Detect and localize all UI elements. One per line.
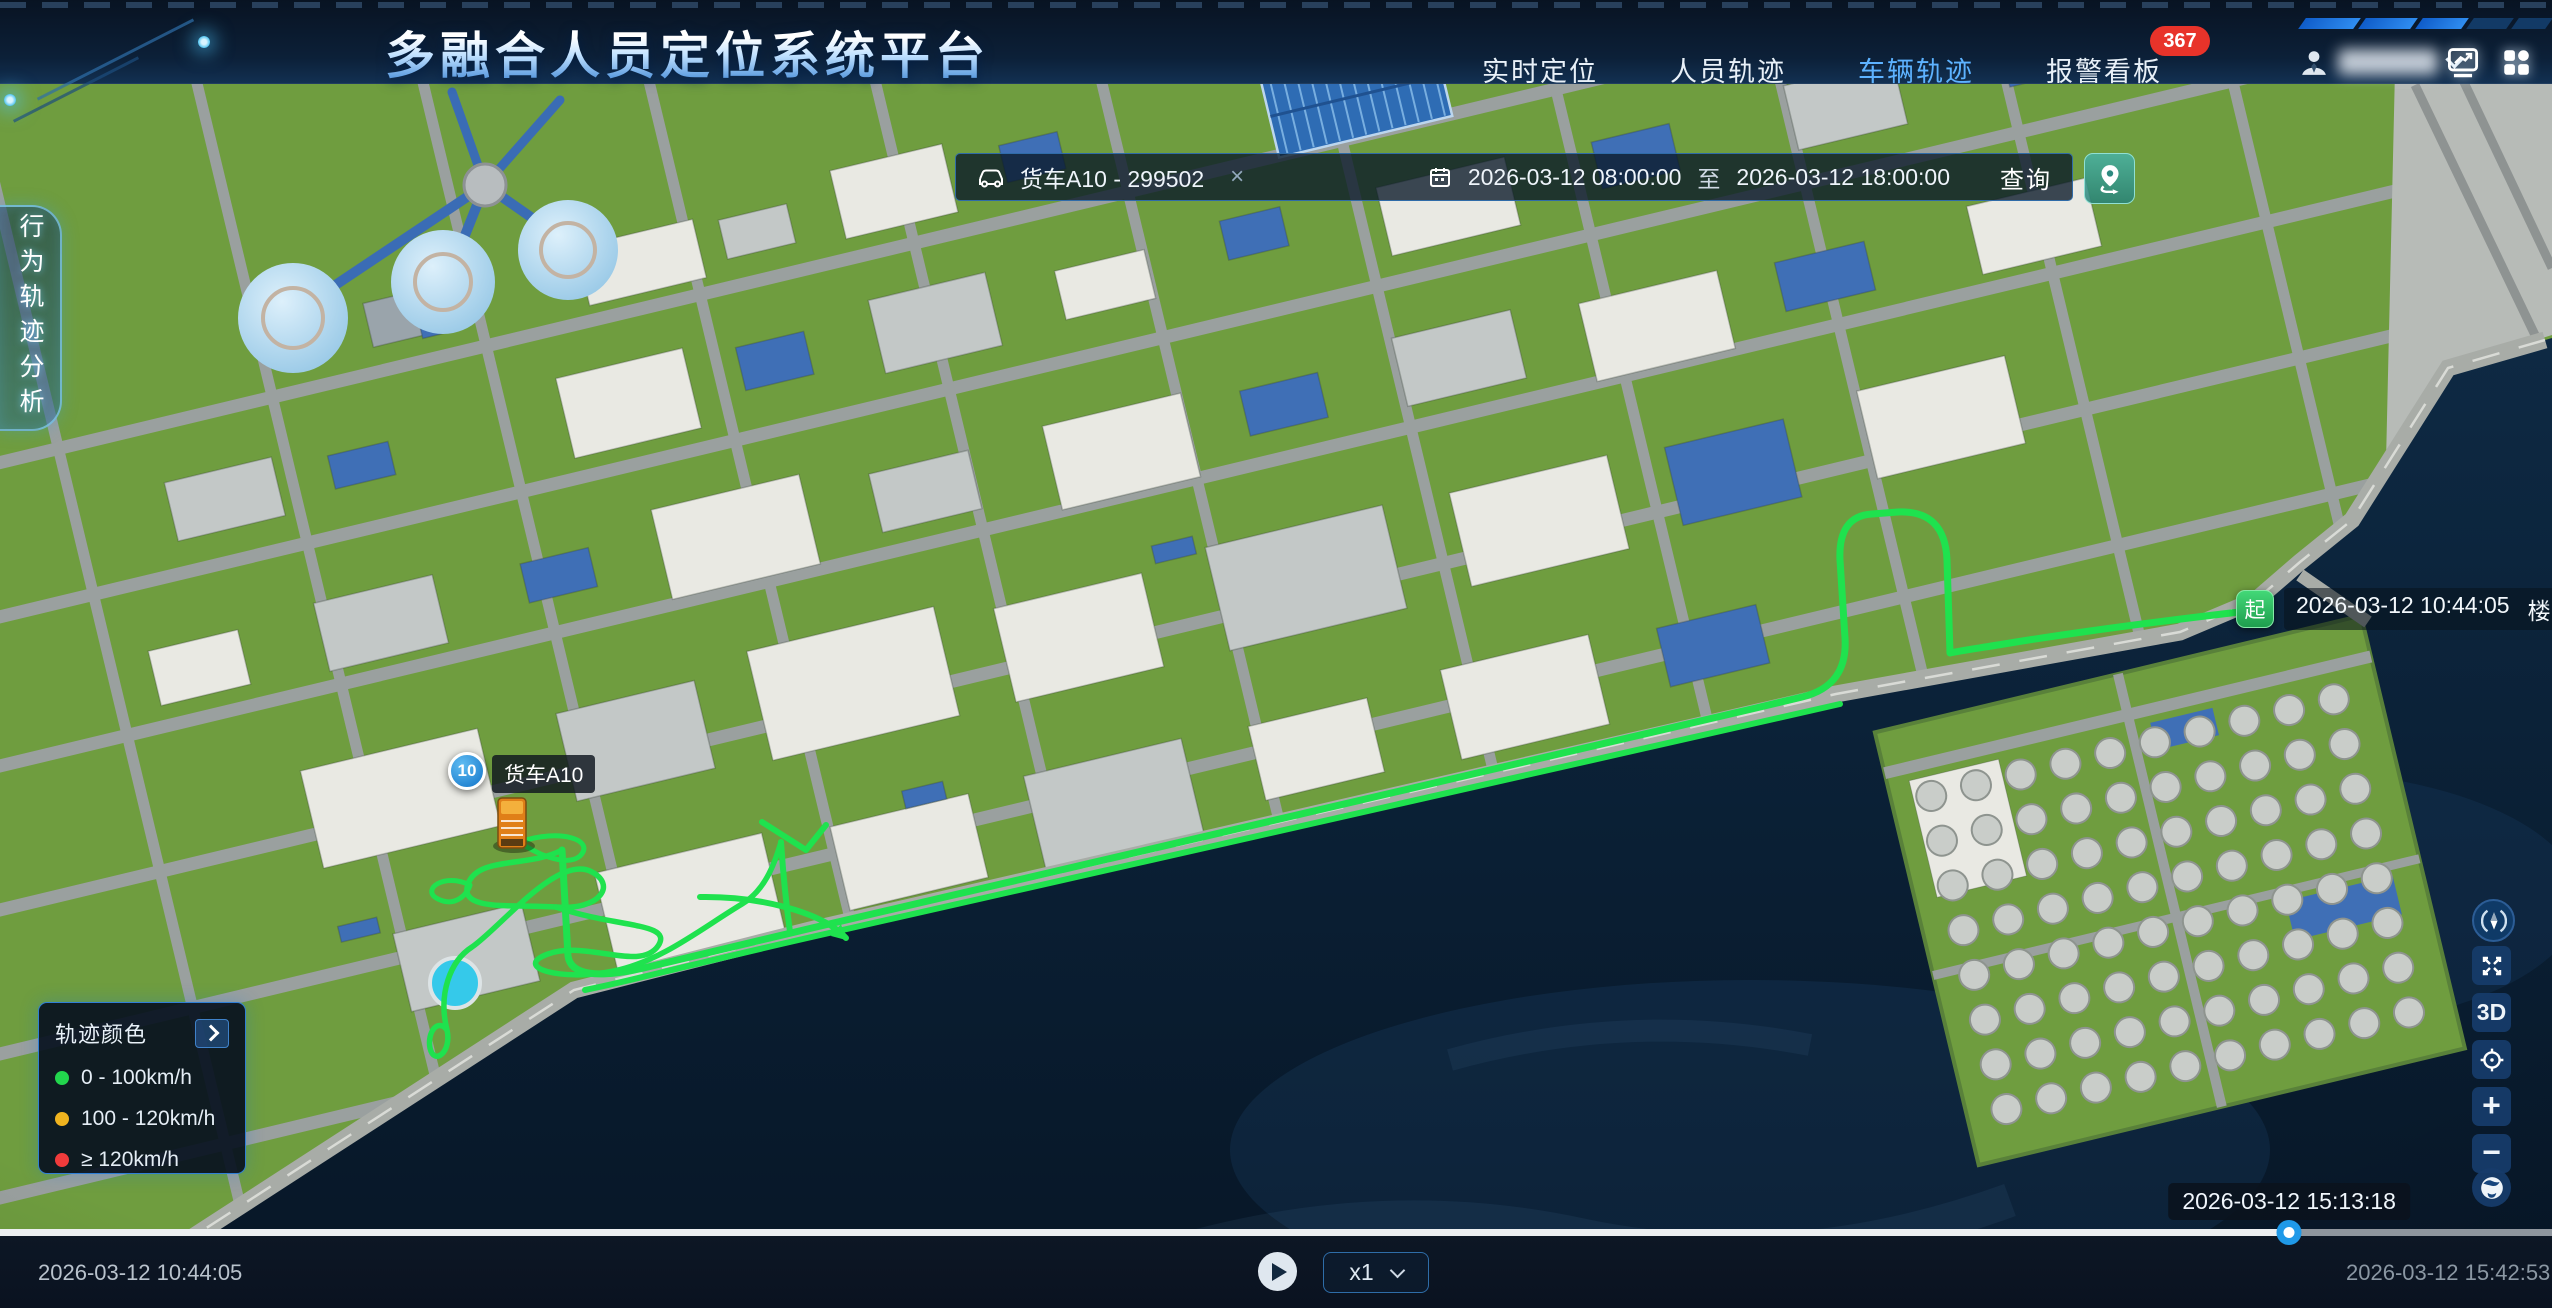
zoom-in-button[interactable]: + bbox=[2472, 1087, 2511, 1126]
play-button[interactable] bbox=[1258, 1252, 1297, 1291]
basemap-globe-button[interactable] bbox=[2472, 1168, 2511, 1207]
app-root: 多融合人员定位系统平台 实时定位 人员轨迹 车辆轨迹 报警看板 367 bbox=[0, 0, 2552, 1308]
monitor-chart-button[interactable] bbox=[2445, 44, 2481, 80]
legend-item-high-speed: ≥ 120km/h bbox=[55, 1148, 229, 1172]
vehicle-select-field[interactable]: 货车A10 - 299502 × bbox=[976, 160, 1244, 194]
target-icon bbox=[2479, 1047, 2505, 1073]
vehicle-marker[interactable]: 10 货车A10 bbox=[448, 752, 595, 793]
header: 多融合人员定位系统平台 实时定位 人员轨迹 车辆轨迹 报警看板 367 bbox=[0, 0, 2552, 84]
compass-button[interactable] bbox=[2472, 899, 2515, 942]
compass-icon bbox=[2481, 908, 2507, 934]
vehicle-icon bbox=[976, 165, 1006, 189]
locate-target-button[interactable] bbox=[2472, 1040, 2511, 1079]
behavior-track-analysis-tab[interactable]: 行为轨迹分析 bbox=[0, 205, 62, 431]
play-icon bbox=[1272, 1263, 1287, 1281]
user-menu[interactable] bbox=[2300, 48, 2461, 76]
fullscreen-button[interactable] bbox=[2472, 946, 2511, 985]
3d-mode-button[interactable]: 3D bbox=[2472, 993, 2511, 1032]
start-place: 楼宇A bbox=[2528, 592, 2552, 626]
person-locate-button[interactable] bbox=[2084, 153, 2135, 204]
fullscreen-icon bbox=[2480, 954, 2504, 978]
start-label: 2026-03-12 10:44:05 楼宇A bbox=[2284, 588, 2552, 630]
globe-icon bbox=[2479, 1175, 2505, 1201]
track-color-legend: 轨迹颜色 0 - 100km/h 100 - 120km/h ≥ 120km/h bbox=[38, 1002, 246, 1174]
slider-tooltip: 2026-03-12 15:13:18 bbox=[2168, 1183, 2410, 1220]
clear-vehicle-button[interactable]: × bbox=[1230, 165, 1244, 189]
legend-expand-button[interactable] bbox=[195, 1019, 229, 1048]
yellow-speed-dot bbox=[55, 1112, 69, 1126]
legend-item-mid-speed: 100 - 120km/h bbox=[55, 1107, 229, 1131]
date-end-value: 2026-03-12 18:00:00 bbox=[1736, 164, 1950, 191]
vehicle-name-label: 货车A10 bbox=[492, 755, 595, 793]
nav-realtime-location[interactable]: 实时定位 bbox=[1482, 50, 1598, 89]
track-search-bar: 货车A10 - 299502 × 2026-03-12 08:00:00 至 2… bbox=[955, 153, 2073, 201]
slider-handle[interactable] bbox=[2277, 1220, 2302, 1245]
apps-grid-button[interactable] bbox=[2498, 44, 2534, 80]
red-speed-dot bbox=[55, 1153, 69, 1167]
date-to-label: 至 bbox=[1697, 160, 1720, 194]
header-slash-decoration bbox=[2511, 18, 2552, 29]
speed-value: x1 bbox=[1349, 1259, 1373, 1286]
track-start-marker: 起 2026-03-12 10:44:05 楼宇A bbox=[2236, 588, 2552, 630]
pin-locate-icon bbox=[2094, 163, 2126, 195]
calendar-icon bbox=[1428, 165, 1452, 189]
header-slash-decoration bbox=[2415, 18, 2469, 29]
header-slash-decoration bbox=[2466, 18, 2514, 29]
legend-item-low-speed: 0 - 100km/h bbox=[55, 1066, 229, 1090]
query-button[interactable]: 查询 bbox=[2000, 160, 2052, 195]
green-speed-dot bbox=[55, 1071, 69, 1085]
date-start-value: 2026-03-12 08:00:00 bbox=[1468, 164, 1682, 191]
legend-title: 轨迹颜色 bbox=[55, 1017, 147, 1049]
glow-dot bbox=[4, 94, 16, 106]
page-title: 多融合人员定位系统平台 bbox=[385, 16, 990, 88]
header-slash-decoration bbox=[2298, 18, 2361, 29]
alarm-count-badge: 367 bbox=[2150, 26, 2210, 56]
chevron-right-icon bbox=[202, 1025, 219, 1042]
vehicle-value: 货车A10 - 299502 bbox=[1020, 160, 1204, 194]
chevron-down-icon bbox=[1389, 1262, 1405, 1278]
monitor-chart-icon bbox=[2446, 45, 2480, 79]
nav-alarm-board[interactable]: 报警看板 bbox=[2046, 50, 2162, 89]
vehicle-count-badge: 10 bbox=[448, 752, 486, 790]
apps-grid-icon bbox=[2500, 46, 2532, 78]
playback-start-time: 2026-03-12 10:44:05 bbox=[38, 1260, 242, 1286]
playback-end-time: 2026-03-12 15:42:53 bbox=[2346, 1260, 2550, 1286]
glow-dot bbox=[198, 36, 210, 48]
nav-vehicle-track[interactable]: 车辆轨迹 bbox=[1858, 50, 1974, 89]
timeline-slider[interactable]: 2026-03-12 15:13:18 bbox=[0, 1229, 2552, 1236]
start-time: 2026-03-12 10:44:05 bbox=[2296, 592, 2510, 626]
date-range-field[interactable]: 2026-03-12 08:00:00 至 2026-03-12 18:00:0… bbox=[1428, 160, 1950, 194]
header-dash-decoration bbox=[0, 2, 2552, 8]
user-name-redacted bbox=[2338, 49, 2438, 75]
start-badge: 起 bbox=[2236, 590, 2274, 628]
user-avatar-icon bbox=[2300, 48, 2328, 76]
playback-speed-select[interactable]: x1 bbox=[1323, 1252, 1429, 1293]
header-slash-decoration bbox=[2358, 18, 2418, 29]
nav-personnel-track[interactable]: 人员轨迹 bbox=[1670, 50, 1786, 89]
slider-progress bbox=[0, 1229, 2289, 1236]
side-tab-label: 行为轨迹分析 bbox=[12, 213, 48, 423]
